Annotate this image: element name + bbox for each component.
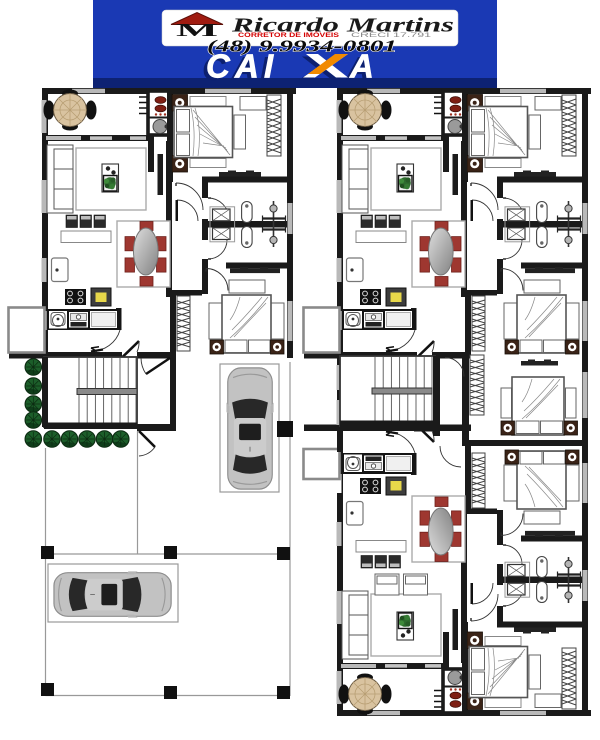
svg-text:A: A xyxy=(349,48,374,85)
svg-text:C: C xyxy=(206,48,231,85)
svg-text:I: I xyxy=(264,48,274,85)
svg-text:A: A xyxy=(234,48,259,85)
